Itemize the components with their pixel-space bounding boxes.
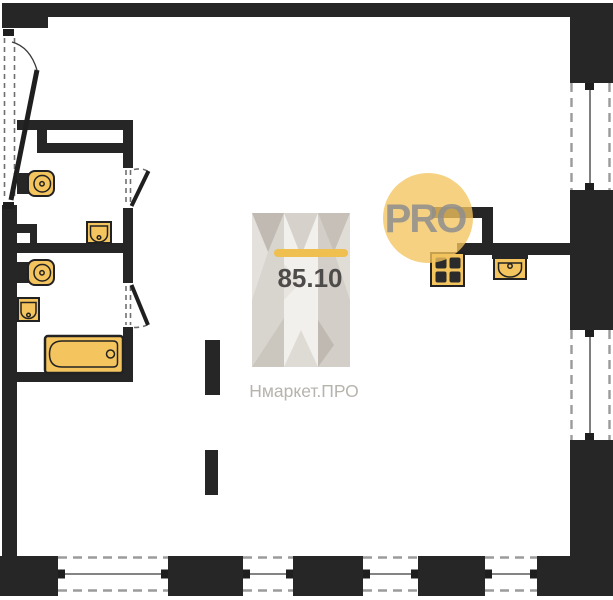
wall-right-upper [570,14,613,83]
column-1 [205,340,220,395]
wall-left [2,205,17,556]
wall-bottom-pier-3 [293,556,363,596]
niche-wall-vertical [30,233,37,243]
bathtub [45,336,123,373]
accent-bar [274,249,348,257]
bathroom-door-1 [126,169,149,206]
wall-bottom-pier-4 [418,556,485,596]
wall-right-middle [570,190,613,330]
window-right-1 [572,83,610,190]
wall-bottom-pier-5 [537,556,613,596]
floor-plan-canvas: 85.10 Нмаркет.ПРО PRO [0,0,613,600]
bathroom-door-2 [126,285,148,328]
floor-plan-svg: 85.10 Нмаркет.ПРО PRO [0,0,613,600]
toilet-2 [17,260,54,285]
duct-wall-horizontal [47,143,133,153]
badge-label: PRO [385,197,467,241]
window-bottom-2 [243,558,293,591]
bathroom-wall-top [17,120,133,130]
brand-label: Нмаркет.ПРО [249,381,359,401]
niche-wall-horizontal [17,224,37,233]
bathroom-divider-wall [17,243,133,253]
window-bottom-4 [485,558,537,591]
window-bottom-1 [58,558,168,591]
wall-right-lower [570,440,613,556]
wall-top [2,3,613,17]
washbasin-2 [18,298,39,321]
pro-badge: PRO [383,173,473,263]
wall-bottom-pier-2 [168,556,243,596]
column-2 [205,450,218,495]
kitchen-wall-vertical [482,218,493,243]
toilet-1 [17,171,54,196]
window-right-2 [572,330,610,440]
columns [205,340,220,495]
area-label: 85.10 [277,263,342,293]
kitchen-sink [492,252,528,279]
duct-wall-vertical [37,130,47,153]
window-bottom-3 [363,558,418,591]
wall-top-left-block [2,3,48,28]
washbasin-1 [87,222,111,243]
brand-logo: 85.10 [252,213,350,367]
wall-bottom-pier-1 [0,556,58,596]
